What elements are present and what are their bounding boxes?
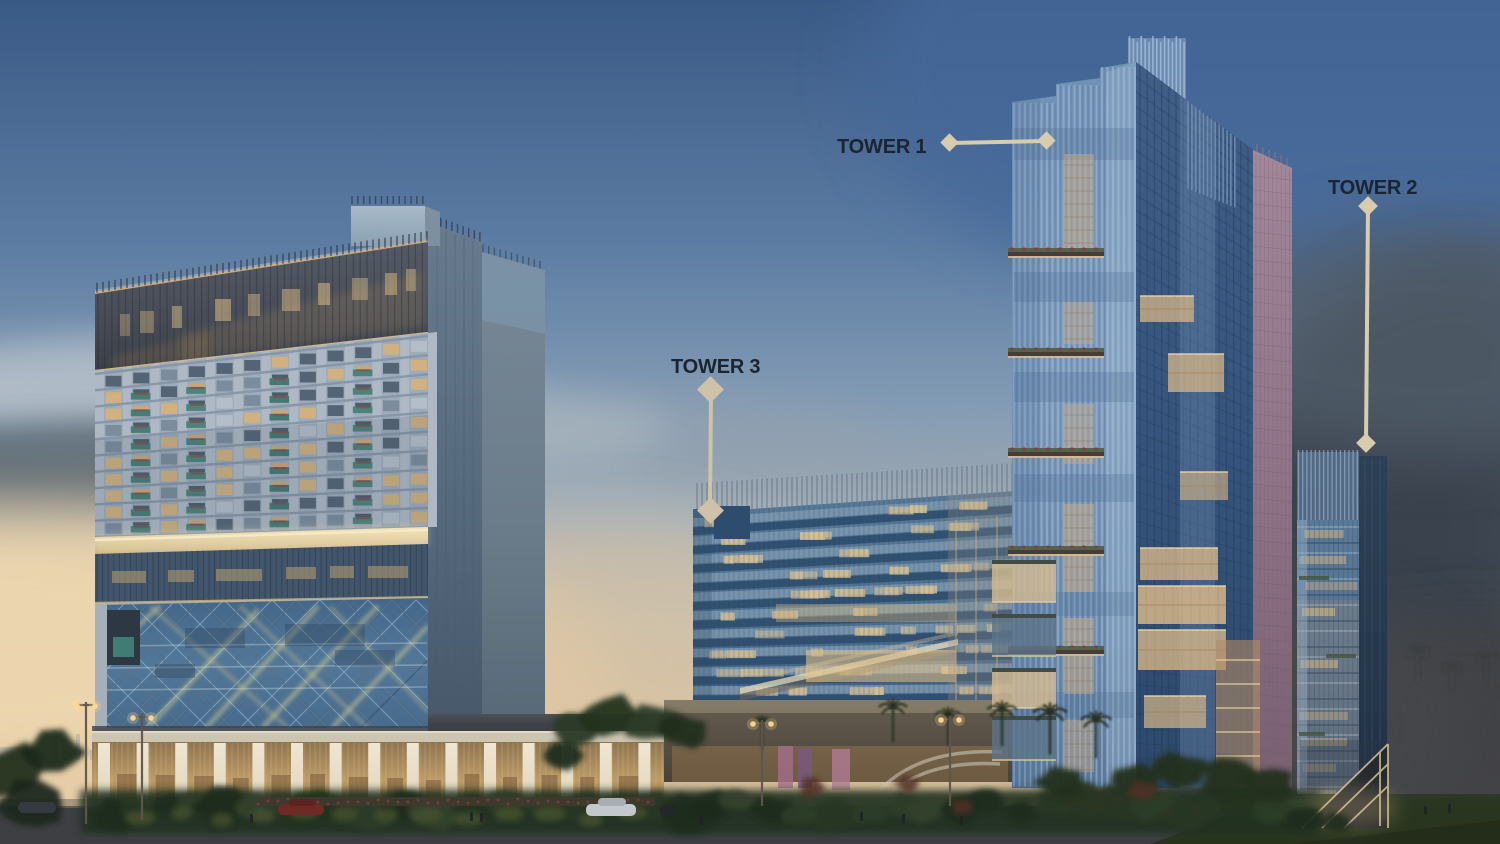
svg-text:TOWER 2: TOWER 2 <box>1328 177 1417 199</box>
svg-text:TOWER 1: TOWER 1 <box>837 136 926 158</box>
svg-text:TOWER 3: TOWER 3 <box>671 356 760 378</box>
